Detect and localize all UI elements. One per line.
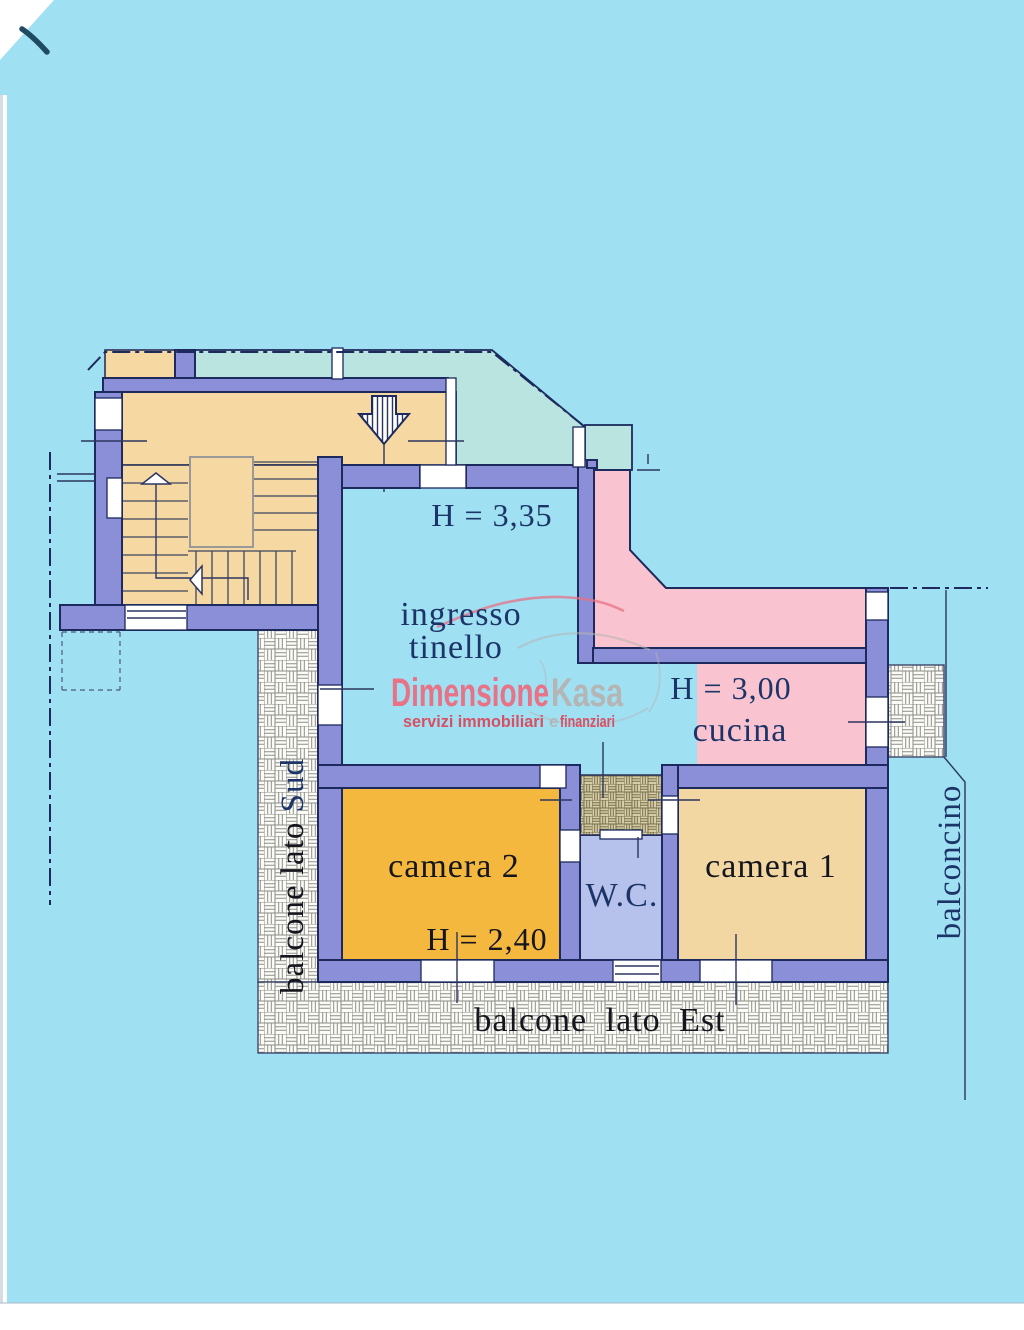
label-bedroom2-height: H = 2,40	[426, 921, 547, 957]
logo-tagline-part2: finanziari	[560, 712, 615, 731]
label-bedroom2-name: camera 2	[388, 848, 520, 885]
label-bedroom1-name: camera 1	[705, 848, 837, 885]
floor-plan-page: Dimensione Kasa servizi immobiliari e fi…	[0, 0, 1024, 1330]
wall-top-column	[175, 350, 195, 380]
logo-brand-part2: Kasa	[551, 671, 624, 715]
floor-plan-drawing: Dimensione Kasa servizi immobiliari e fi…	[0, 0, 1024, 1330]
label-balcony-south-word: Sud	[275, 758, 311, 812]
label-balcony-south: balcone lato Sud	[275, 758, 311, 994]
label-balcony-south-prefix: balcone lato	[275, 812, 311, 994]
door-cucina-balcony	[866, 592, 888, 620]
door-stair-bottom	[125, 605, 187, 630]
wall-shaft-stub	[587, 460, 597, 468]
stair-top-box	[105, 350, 175, 378]
label-wc-name: W.C.	[586, 877, 659, 914]
window-tinello-south	[318, 685, 342, 725]
wall-kitchen-bottom	[593, 648, 868, 663]
door-disimpegno	[540, 765, 566, 788]
small-balcony	[888, 665, 944, 757]
paper-edge-bottom	[0, 1303, 1024, 1330]
label-hall-name-1: ingresso	[400, 596, 521, 633]
wall-bedrooms-top-a	[318, 765, 566, 788]
wall-tinello-top-a	[342, 465, 420, 488]
wall-apartment-bottom	[318, 960, 888, 982]
label-kitchen-height: H = 3,00	[670, 670, 791, 706]
scanner-edge-shadow	[0, 95, 3, 1330]
label-balcony-east: balcone lato Est	[474, 1002, 725, 1039]
gap-landing-right	[446, 378, 456, 465]
door-stair-left	[95, 398, 122, 430]
window-stair-left	[107, 478, 122, 518]
stair-landing	[122, 392, 448, 465]
door-wc	[600, 830, 642, 839]
logo-tagline-part1: servizi immobiliari	[403, 712, 544, 731]
logo-brand-part1: Dimensione	[391, 671, 549, 715]
label-small-balcony: balconcino	[932, 785, 968, 940]
gap-shaft-left	[573, 427, 585, 467]
label-kitchen-name: cucina	[693, 712, 788, 749]
door-camera2	[560, 830, 580, 862]
door-camera1	[662, 796, 678, 834]
french-door-wc	[613, 960, 661, 982]
stairwell-eye	[190, 457, 253, 547]
label-hall-height: H = 3,35	[431, 497, 552, 533]
wall-tinello-top-b	[466, 465, 578, 488]
logo-tagline-conj: e	[549, 712, 558, 731]
wall-wc-camera1	[662, 765, 678, 960]
door-apartment-entry	[420, 465, 466, 488]
wall-stair-bottom	[60, 605, 318, 630]
wall-bedrooms-top-b	[662, 765, 888, 788]
wall-landing-top	[103, 378, 448, 392]
label-hall-name-2: tinello	[409, 629, 503, 666]
